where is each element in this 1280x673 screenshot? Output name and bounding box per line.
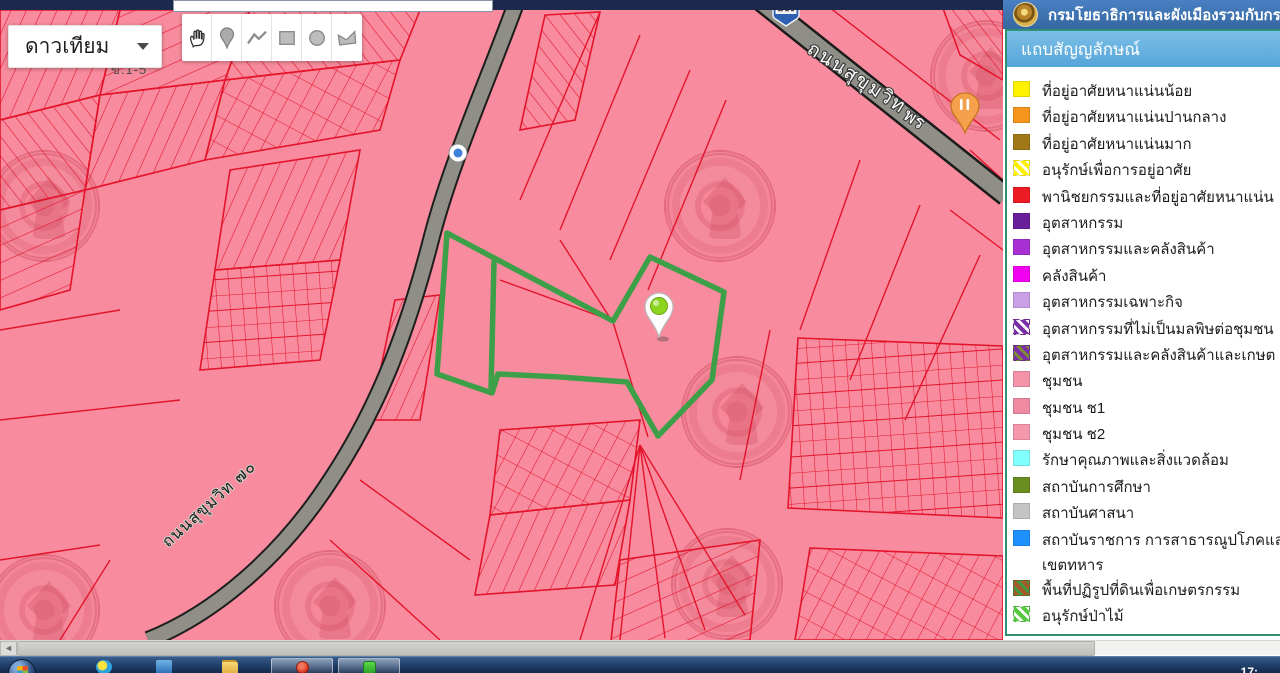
legend-item: ชุมชน bbox=[1013, 369, 1280, 395]
place-marker-tool-button[interactable] bbox=[212, 14, 242, 61]
legend-item: ชุมชน ช1 bbox=[1013, 396, 1280, 422]
legend-item: พานิชยกรรมและที่อยู่อาศัยหนาแน่น bbox=[1013, 185, 1280, 211]
legend-swatch bbox=[1013, 81, 1030, 97]
top-chrome-strip bbox=[0, 0, 1003, 10]
green-app-icon bbox=[363, 661, 376, 673]
legend-label: ชุมชน ช1 bbox=[1042, 400, 1105, 417]
legend-label: อุตสาหกรรม bbox=[1042, 215, 1123, 232]
windows-taskbar: 17: bbox=[0, 656, 1280, 673]
app-window: ถนนสุขุมวิท ถนนสุขุมวิท ๗๐ พร bbox=[0, 0, 1280, 673]
legend-label: ที่อยู่อาศัยหนาแน่นน้อย bbox=[1042, 83, 1192, 100]
legend-item: อุตสาหกรรมและคลังสินค้าและเกษต bbox=[1013, 343, 1280, 369]
legend-label: ชุมชน ช2 bbox=[1042, 426, 1105, 443]
legend-swatch bbox=[1013, 239, 1030, 255]
red-app-icon bbox=[296, 661, 309, 673]
legend-swatch bbox=[1013, 503, 1030, 519]
legend-item: อนุรักษ์เพื่อการอยู่อาศัย bbox=[1013, 158, 1280, 184]
legend-swatch bbox=[1013, 345, 1030, 361]
legend-box: แถบสัญญลักษณ์ ที่อยู่อาศัยหนาแน่นน้อยที่… bbox=[1005, 29, 1280, 636]
legend-swatch bbox=[1013, 424, 1030, 440]
blue-poi-dot-icon[interactable] bbox=[449, 144, 467, 162]
legend-item: สถาบันศาสนา bbox=[1013, 501, 1280, 527]
legend-swatch bbox=[1013, 450, 1030, 466]
legend-item: พื้นที่ปฏิรูปที่ดินเพื่อเกษตรกรรม bbox=[1013, 578, 1280, 604]
windows-flag-icon bbox=[17, 666, 28, 673]
legend-label: อุตสาหกรรมเฉพาะกิจ bbox=[1042, 294, 1183, 311]
legend-label: คลังสินค้า bbox=[1042, 268, 1106, 285]
legend-label: พื้นที่ปฏิรูปที่ดินเพื่อเกษตรกรรม bbox=[1042, 582, 1240, 599]
legend-swatch bbox=[1013, 107, 1030, 123]
legend-swatch bbox=[1013, 266, 1030, 282]
legend-label: พานิชยกรรมและที่อยู่อาศัยหนาแน่น bbox=[1042, 189, 1274, 206]
legend-swatch bbox=[1013, 606, 1030, 622]
draw-rectangle-tool-button[interactable] bbox=[272, 14, 302, 61]
legend-swatch bbox=[1013, 187, 1030, 203]
green-app-window-button[interactable] bbox=[338, 658, 400, 673]
polygon-tool-icon bbox=[336, 28, 358, 48]
legend-item: ที่อยู่อาศัยหนาแน่นน้อย bbox=[1013, 79, 1280, 105]
legend-item: อุตสาหกรรมและคลังสินค้า bbox=[1013, 237, 1280, 263]
legend-label: ชุมชน bbox=[1042, 373, 1083, 390]
draw-toolbar bbox=[182, 14, 362, 61]
legend-item: ชุมชน ช2 bbox=[1013, 422, 1280, 448]
legend-list: ที่อยู่อาศัยหนาแน่นน้อยที่อยู่อาศัยหนาแน… bbox=[1007, 67, 1280, 630]
legend-swatch bbox=[1013, 398, 1030, 414]
legend-label: อุตสาหกรรมและคลังสินค้า bbox=[1042, 241, 1215, 258]
polyline-tool-icon bbox=[246, 29, 268, 47]
red-app-window-button[interactable] bbox=[271, 658, 333, 673]
legend-swatch bbox=[1013, 134, 1030, 150]
pan-hand-tool-button[interactable] bbox=[182, 14, 212, 61]
draw-polyline-tool-button[interactable] bbox=[242, 14, 272, 61]
top-chrome-inset bbox=[173, 0, 493, 12]
department-seal-icon bbox=[1013, 2, 1038, 27]
basemap-dropdown[interactable]: ดาวเทียม bbox=[8, 25, 162, 68]
chevron-down-icon bbox=[137, 43, 149, 50]
rectangle-tool-icon bbox=[277, 29, 297, 47]
legend-label: อนุรักษ์ป่าไม้ bbox=[1042, 608, 1124, 625]
legend-label: รักษาคุณภาพและสิ่งแวดล้อม bbox=[1042, 452, 1229, 469]
legend-swatch bbox=[1013, 160, 1030, 176]
legend-swatch bbox=[1013, 292, 1030, 308]
basemap-dropdown-value: ดาวเทียม bbox=[25, 30, 109, 63]
taskbar-clock: 17: bbox=[1241, 665, 1258, 673]
legend-item: อุตสาหกรรมเฉพาะกิจ bbox=[1013, 290, 1280, 316]
legend-panel: กรมโยธาธิการและผังเมืองรวมกับกร แถบสัญญล… bbox=[1003, 0, 1280, 640]
horizontal-scrollbar[interactable]: ◄ bbox=[0, 640, 1280, 656]
ie-browser-icon[interactable] bbox=[96, 660, 112, 673]
department-header-bar: กรมโยธาธิการและผังเมืองรวมกับกร bbox=[1003, 0, 1280, 29]
selected-parcel-polygon[interactable] bbox=[437, 233, 724, 436]
pan-hand-icon bbox=[187, 27, 207, 49]
legend-item: ที่อยู่อาศัยหนาแน่นมาก bbox=[1013, 132, 1280, 158]
legend-label: สถาบันการศึกษา bbox=[1042, 479, 1151, 496]
legend-label: สถาบันราชการ การสาธารณูปโภคแล bbox=[1042, 532, 1280, 549]
scroll-left-button[interactable]: ◄ bbox=[0, 641, 17, 656]
circle-tool-icon bbox=[307, 28, 327, 48]
blue-app-icon[interactable] bbox=[156, 660, 172, 673]
legend-label: อุตสาหกรรมที่ไม่เป็นมลพิษต่อชุมชน bbox=[1042, 321, 1274, 338]
legend-item: รักษาคุณภาพและสิ่งแวดล้อม bbox=[1013, 448, 1280, 474]
start-button[interactable] bbox=[8, 659, 36, 673]
map-parcels-layer: ถนนสุขุมวิท ถนนสุขุมวิท ๗๐ พร bbox=[0, 0, 1003, 640]
map-canvas[interactable]: ถนนสุขุมวิท ถนนสุขุมวิท ๗๐ พร bbox=[0, 0, 1003, 640]
legend-title: แถบสัญญลักษณ์ bbox=[1007, 31, 1280, 67]
legend-item: ที่อยู่อาศัยหนาแน่นปานกลาง bbox=[1013, 105, 1280, 131]
legend-label: ที่อยู่อาศัยหนาแน่นปานกลาง bbox=[1042, 109, 1226, 126]
draw-circle-tool-button[interactable] bbox=[302, 14, 332, 61]
legend-swatch bbox=[1013, 580, 1030, 596]
legend-item: สถาบันราชการ การสาธารณูปโภคแลเขตทหาร bbox=[1013, 528, 1280, 578]
legend-swatch bbox=[1013, 371, 1030, 387]
legend-label-line2: เขตทหาร bbox=[1042, 553, 1280, 578]
legend-label: อนุรักษ์เพื่อการอยู่อาศัย bbox=[1042, 162, 1191, 179]
legend-item: อุตสาหกรรมที่ไม่เป็นมลพิษต่อชุมชน bbox=[1013, 317, 1280, 343]
road-label-main: ถนนสุขุมวิท bbox=[803, 39, 910, 119]
legend-label: อุตสาหกรรมและคลังสินค้าและเกษต bbox=[1042, 347, 1275, 364]
scrollbar-thumb[interactable] bbox=[17, 641, 1095, 656]
legend-swatch bbox=[1013, 477, 1030, 493]
legend-swatch bbox=[1013, 213, 1030, 229]
legend-item: อุตสาหกรรม bbox=[1013, 211, 1280, 237]
road-label-secondary: ถนนสุขุมวิท ๗๐ bbox=[159, 458, 260, 551]
draw-polygon-tool-button[interactable] bbox=[332, 14, 362, 61]
legend-swatch bbox=[1013, 319, 1030, 335]
legend-label: สถาบันศาสนา bbox=[1042, 505, 1134, 522]
department-title: กรมโยธาธิการและผังเมืองรวมกับกร bbox=[1048, 3, 1280, 27]
legend-label: ที่อยู่อาศัยหนาแน่นมาก bbox=[1042, 136, 1192, 153]
legend-item: คลังสินค้า bbox=[1013, 264, 1280, 290]
folder-icon[interactable] bbox=[222, 660, 238, 673]
legend-item: สถาบันการศึกษา bbox=[1013, 475, 1280, 501]
orange-food-pin-icon[interactable] bbox=[951, 93, 979, 133]
marker-tool-icon bbox=[219, 27, 235, 49]
legend-item: อนุรักษ์ป่าไม้ bbox=[1013, 604, 1280, 630]
legend-swatch bbox=[1013, 530, 1030, 546]
green-location-pin-icon[interactable] bbox=[645, 293, 673, 342]
